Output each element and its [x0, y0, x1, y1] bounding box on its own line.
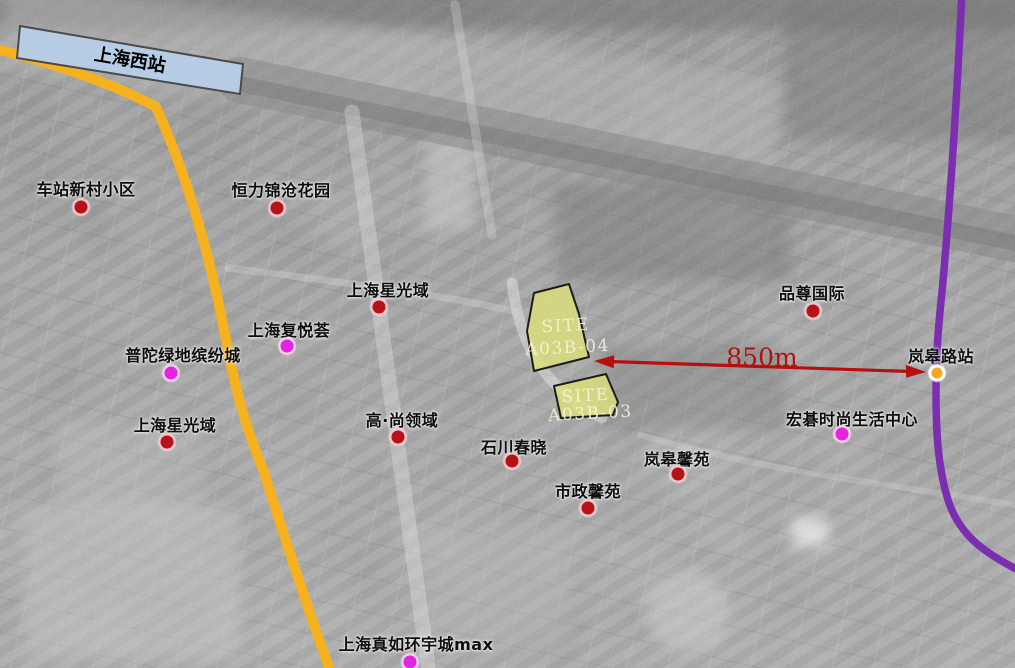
magenta-marker-dot	[163, 365, 180, 382]
red-marker-dot	[805, 303, 822, 320]
red-marker-dot	[670, 466, 687, 483]
red-marker-dot	[159, 434, 176, 451]
magenta-marker-dot	[402, 654, 419, 668]
red-marker-dot	[504, 453, 521, 470]
red-marker-dot	[390, 429, 407, 446]
marker-label: 上海星光域	[134, 412, 217, 436]
marker-label: 恒力锦沧花园	[231, 177, 330, 201]
markers-layer: 车站新村小区 恒力锦沧花园 上海星光域 上海复悦荟 普陀绿地缤纷城 上海星光域 …	[0, 0, 1015, 668]
red-marker-dot	[269, 200, 286, 217]
magenta-marker-dot	[834, 426, 851, 443]
marker-label: 品尊国际	[779, 280, 845, 304]
marker-label: 普陀绿地缤纷城	[125, 342, 241, 366]
red-marker-dot	[371, 299, 388, 316]
marker-label: 岚皋路站	[908, 343, 974, 367]
marker-label: 上海星光域	[347, 277, 430, 301]
marker-label: 高·尚领域	[366, 407, 439, 431]
satellite-map: 上海西站 SITE A03B-04 SITE A03B-03 850m	[0, 0, 1015, 668]
marker-label: 上海真如环宇城max	[339, 631, 494, 655]
marker-label: 宏碁时尚生活中心	[786, 406, 918, 430]
marker-label: 市政馨苑	[555, 478, 621, 502]
red-marker-dot	[73, 199, 90, 216]
magenta-marker-dot	[279, 338, 296, 355]
marker-label: 车站新村小区	[36, 176, 135, 200]
red-marker-dot	[580, 500, 597, 517]
station-dot	[929, 365, 946, 382]
